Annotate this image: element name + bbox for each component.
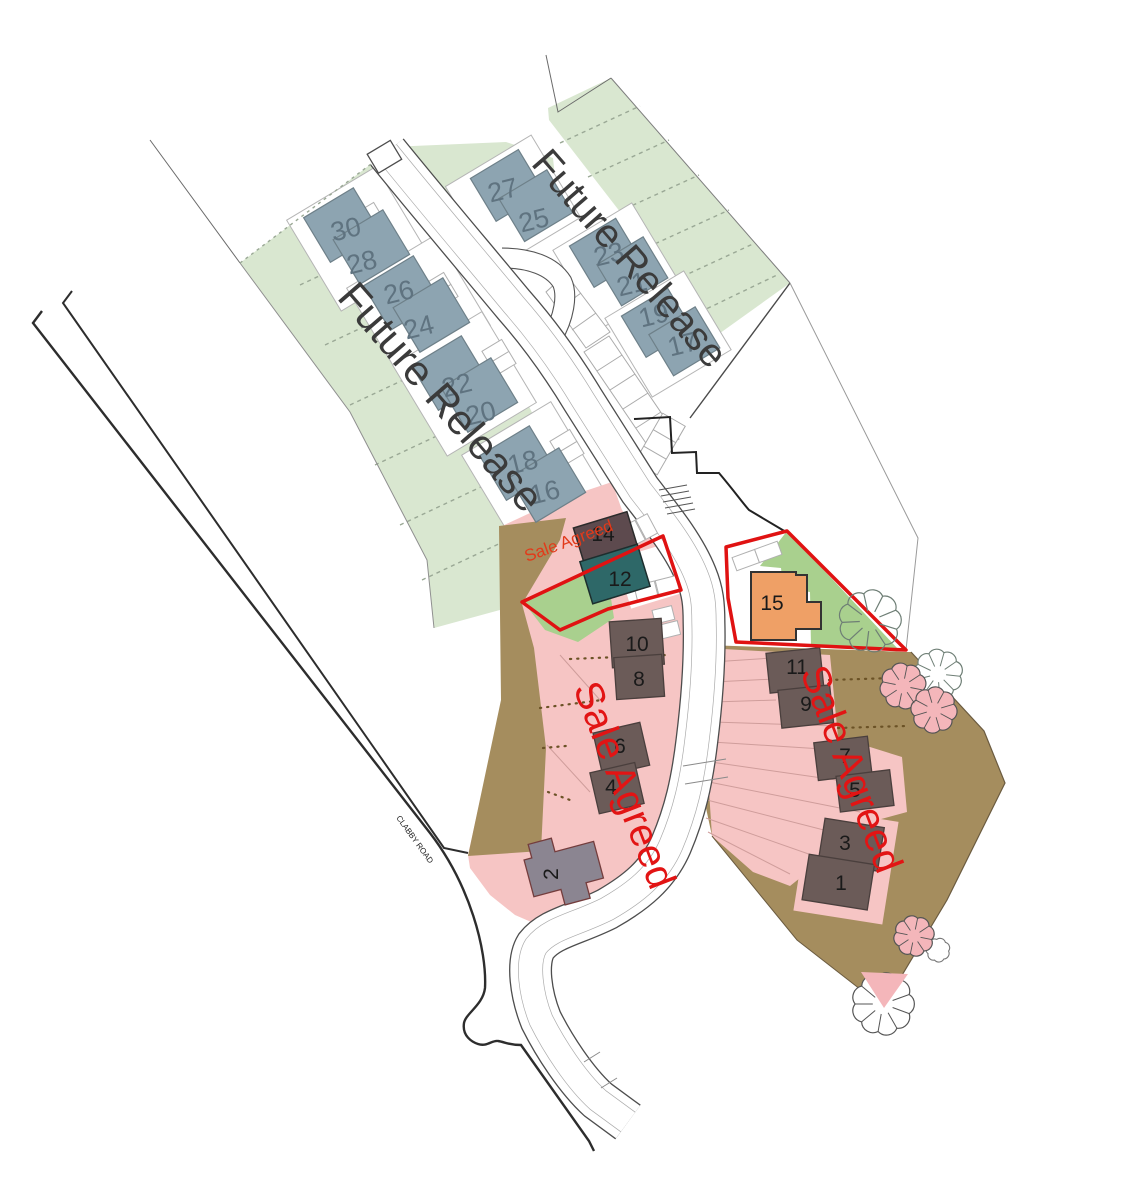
svg-text:2: 2 xyxy=(540,868,563,880)
svg-text:15: 15 xyxy=(760,592,783,615)
svg-text:3: 3 xyxy=(839,832,851,855)
svg-text:CLABBY ROAD: CLABBY ROAD xyxy=(394,814,435,865)
svg-text:10: 10 xyxy=(625,633,648,656)
svg-text:8: 8 xyxy=(633,668,645,691)
svg-text:1: 1 xyxy=(835,872,847,895)
svg-text:12: 12 xyxy=(608,568,631,591)
